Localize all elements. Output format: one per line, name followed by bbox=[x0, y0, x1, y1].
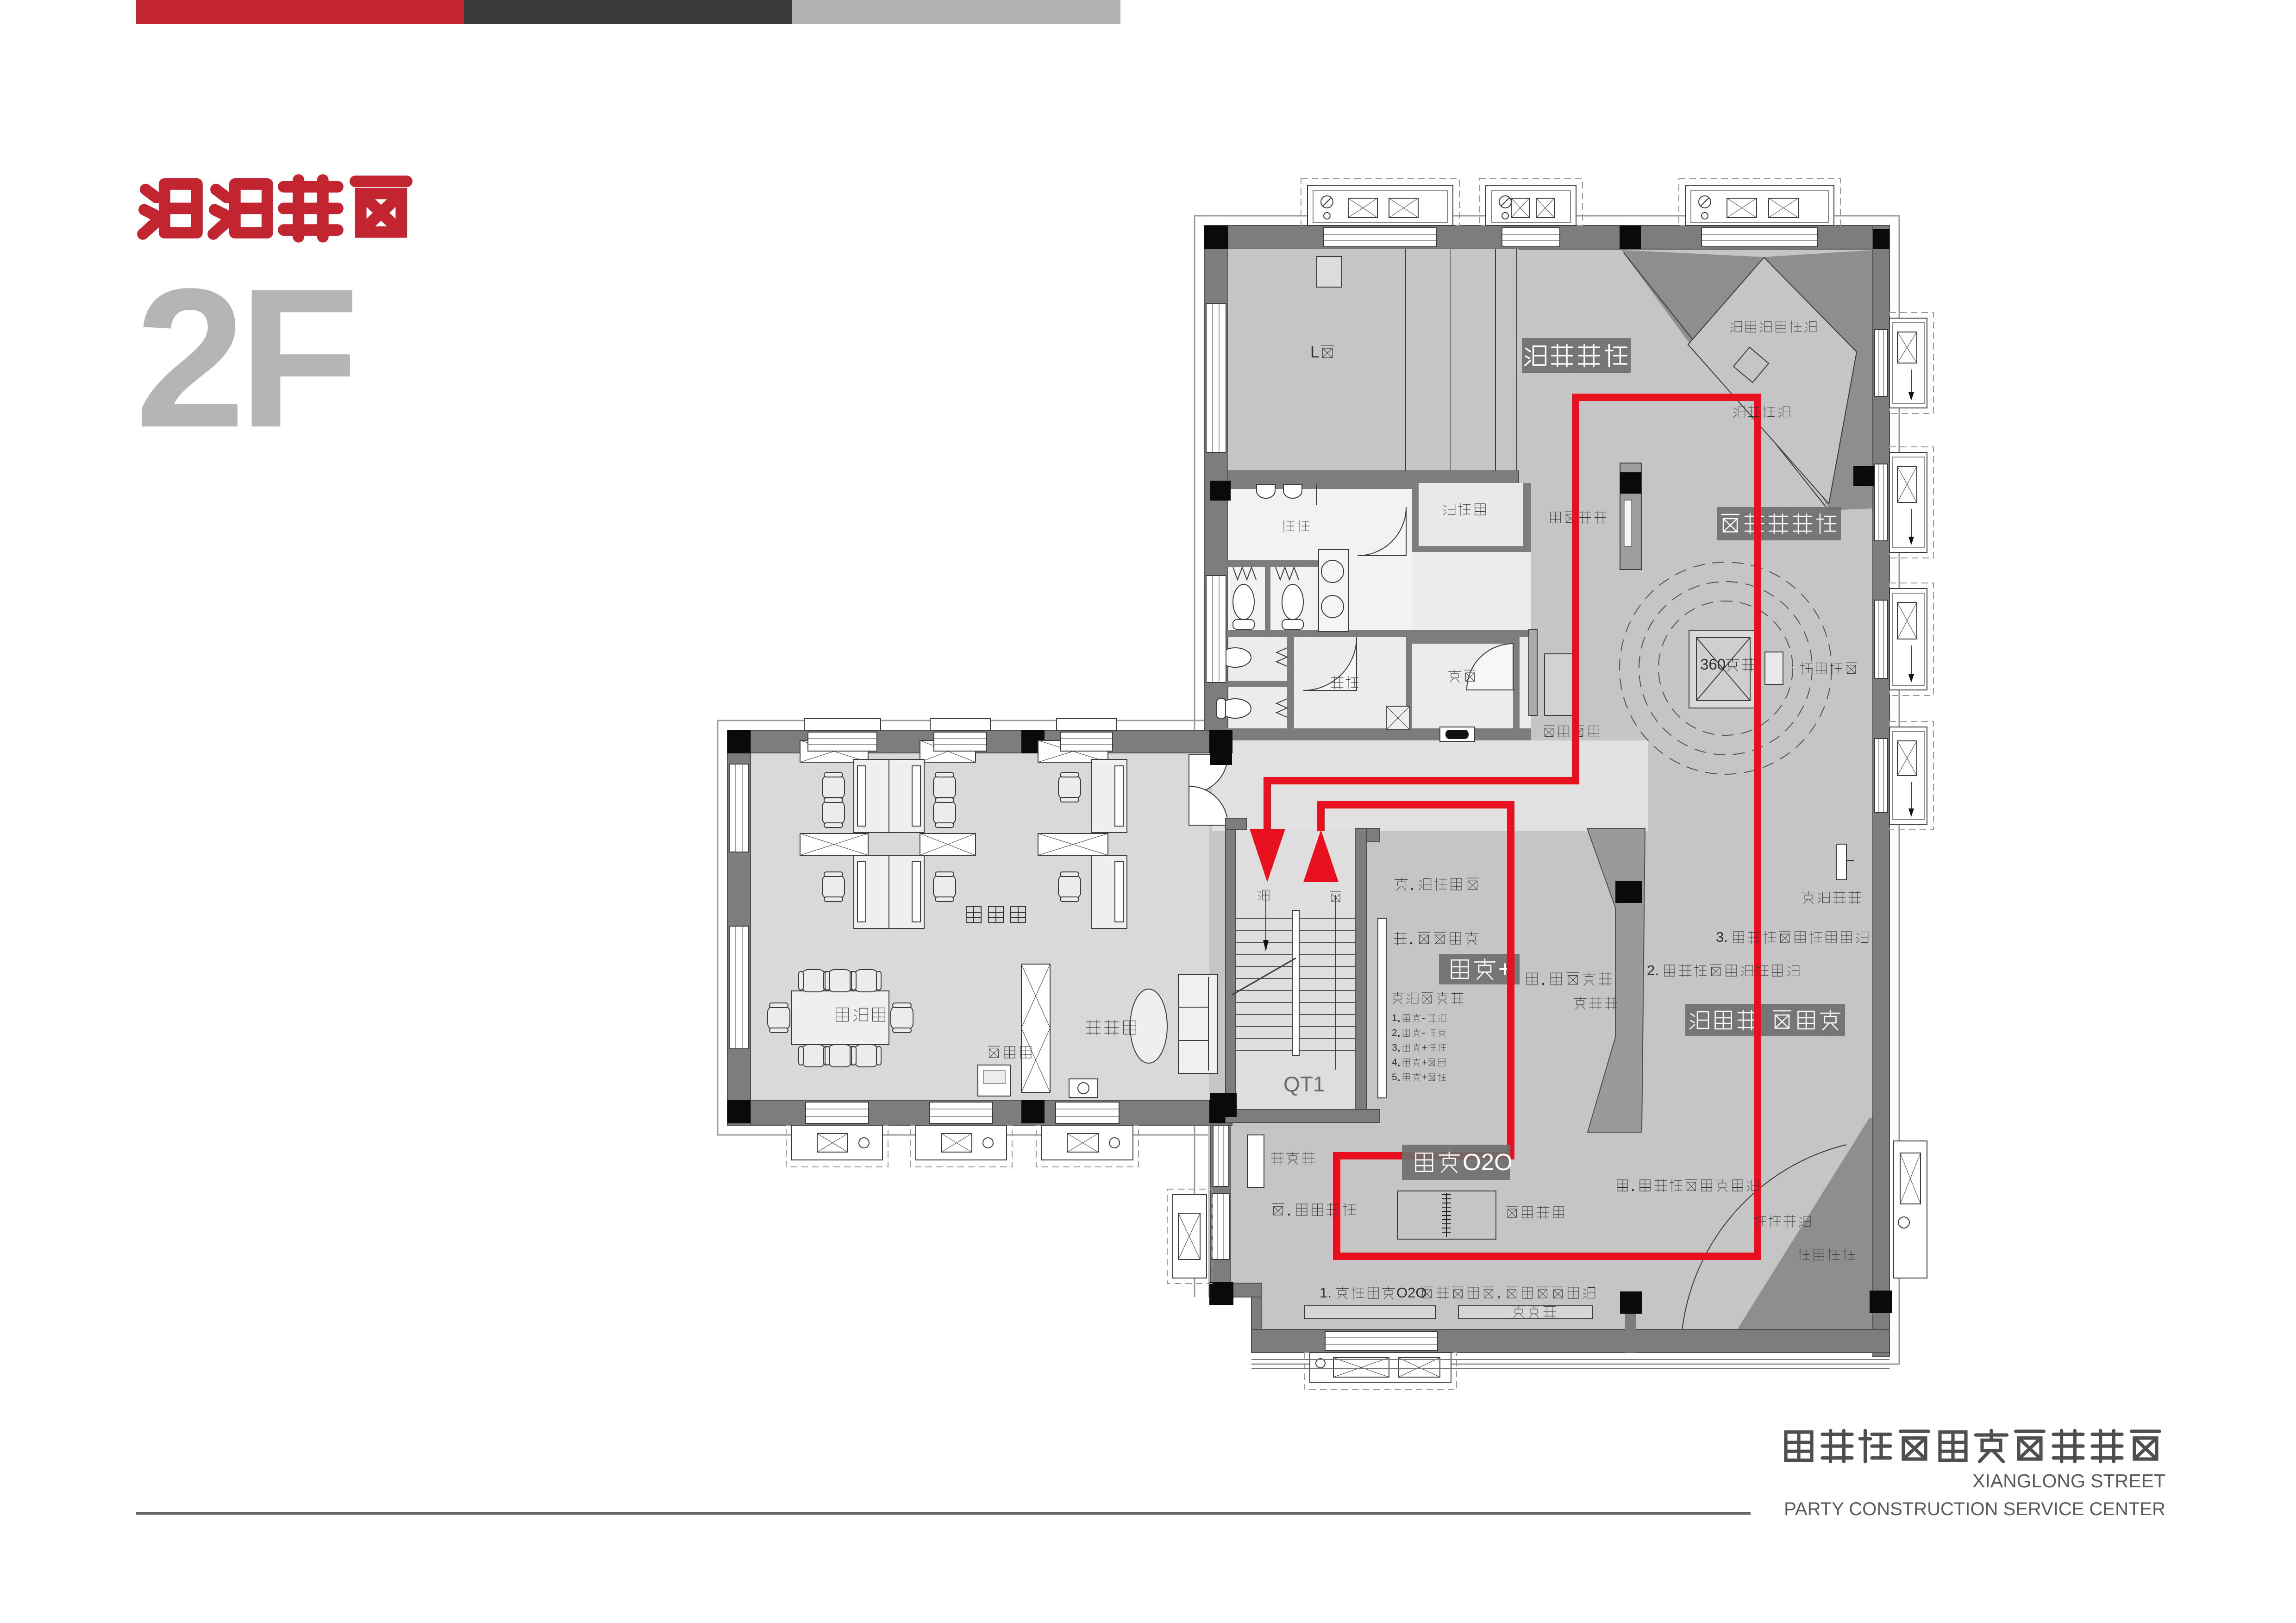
svg-text:3: 3 bbox=[1392, 1042, 1397, 1053]
svg-text:QT1: QT1 bbox=[1283, 1072, 1325, 1096]
svg-text:1: 1 bbox=[1392, 1013, 1397, 1023]
svg-text:5: 5 bbox=[1392, 1072, 1397, 1083]
svg-text:-: - bbox=[1422, 1013, 1425, 1023]
svg-text:2F: 2F bbox=[135, 247, 353, 469]
svg-text:-: - bbox=[1422, 1028, 1425, 1038]
svg-text:XIANGLONG STREET: XIANGLONG STREET bbox=[1972, 1470, 2165, 1491]
svg-text:1.: 1. bbox=[1320, 1285, 1332, 1301]
svg-text:+: + bbox=[1422, 1042, 1427, 1053]
svg-text:360: 360 bbox=[1700, 656, 1726, 673]
svg-text:2: 2 bbox=[1392, 1028, 1397, 1038]
svg-text:3.: 3. bbox=[1716, 929, 1728, 945]
svg-text:O2O: O2O bbox=[1463, 1149, 1513, 1175]
svg-text:4: 4 bbox=[1392, 1057, 1397, 1068]
svg-text:,: , bbox=[1497, 1285, 1501, 1301]
svg-text:+: + bbox=[1422, 1072, 1427, 1083]
svg-text:+: + bbox=[1422, 1057, 1427, 1068]
svg-text:PARTY CONSTRUCTION SERVICE CEN: PARTY CONSTRUCTION SERVICE CENTER bbox=[1784, 1499, 2165, 1519]
svg-text:L: L bbox=[1310, 343, 1319, 361]
svg-text:2.: 2. bbox=[1647, 962, 1659, 978]
